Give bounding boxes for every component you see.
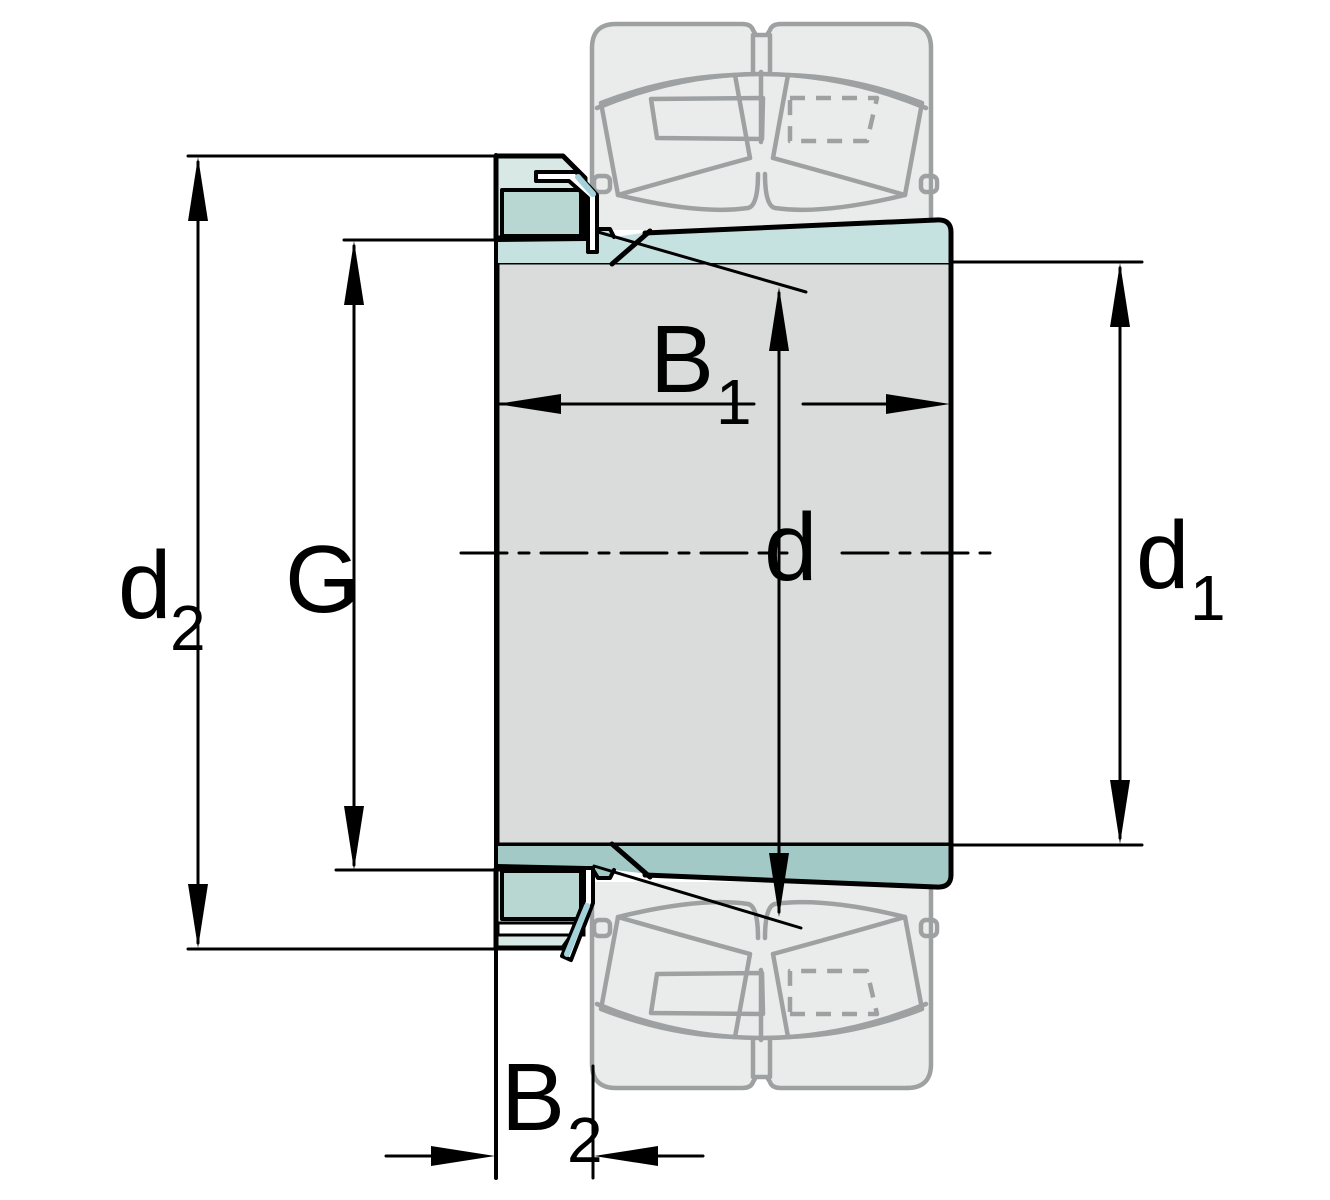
label-g-base: G [285, 526, 360, 633]
label-d2-sub: 2 [170, 592, 206, 664]
label-d-base: d [764, 494, 817, 601]
label-b1-base: B [650, 306, 714, 413]
label-b1-sub: 1 [716, 366, 752, 438]
arrowhead-up [188, 157, 208, 221]
lock-nut-top [496, 156, 585, 238]
nut-inner-bottom [502, 871, 581, 919]
arrowhead-down [344, 806, 364, 870]
adapter-sleeve-drawing: d 2 G B 1 d d 1 B 2 [0, 0, 1330, 1200]
arrowhead-right-in [431, 1146, 495, 1166]
label-b2: B 2 [501, 1044, 603, 1176]
arrowhead-left-in [594, 1146, 658, 1166]
label-g: G [285, 526, 360, 633]
dim-g [336, 240, 496, 870]
ghost-bearing-top [592, 24, 937, 230]
technical-drawing-canvas: d 2 G B 1 d d 1 B 2 [0, 0, 1330, 1200]
label-d1-sub: 1 [1190, 562, 1226, 634]
label-d2: d 2 [118, 532, 206, 664]
arrowhead-down [188, 884, 208, 948]
dim-d2 [188, 155, 496, 1178]
label-b2-sub: 2 [567, 1104, 603, 1176]
label-d: d [764, 494, 817, 601]
label-b2-base: B [501, 1044, 565, 1151]
arrowhead-up [1110, 263, 1130, 327]
label-d2-base: d [118, 532, 171, 639]
nut-inner-top [502, 190, 581, 236]
arrowhead-down [1110, 780, 1130, 844]
ghost-bearing-bottom [592, 882, 937, 1088]
label-d1-base: d [1136, 502, 1189, 609]
label-d1: d 1 [1136, 502, 1226, 634]
arrowhead-up [344, 241, 364, 305]
